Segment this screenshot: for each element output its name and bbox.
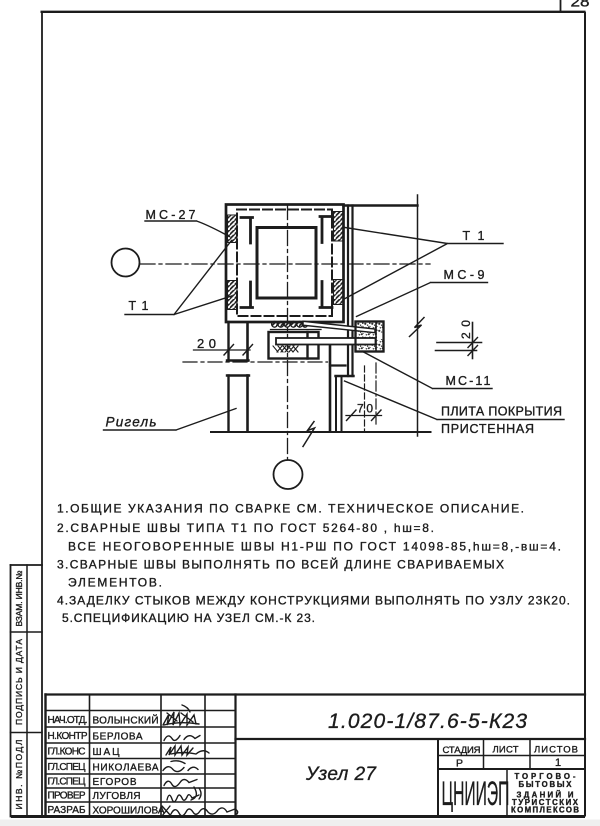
svg-text:ЛУГОВЛЯ: ЛУГОВЛЯ bbox=[93, 791, 141, 802]
svg-text:ЦНИИЭП: ЦНИИЭП bbox=[442, 774, 510, 813]
svg-text:ПЛИТА ПОКРЫТИЯ: ПЛИТА ПОКРЫТИЯ bbox=[441, 405, 562, 419]
svg-text:ВОЛЫНСКИЙ: ВОЛЫНСКИЙ bbox=[93, 714, 159, 727]
svg-text:НАЧ.ОТД.: НАЧ.ОТД. bbox=[48, 715, 88, 726]
svg-text:РАЗРАБ: РАЗРАБ bbox=[48, 805, 86, 816]
svg-text:ПРОВЕР: ПРОВЕР bbox=[48, 791, 86, 802]
svg-text:Узел 27: Узел 27 bbox=[305, 764, 377, 785]
svg-text:Р: Р bbox=[456, 758, 463, 770]
svg-text:ПОДПИСЬ И ДАТА: ПОДПИСЬ И ДАТА bbox=[14, 639, 24, 725]
svg-text:ШАЦ: ШАЦ bbox=[93, 747, 121, 758]
svg-text:ЛИСТ: ЛИСТ bbox=[493, 745, 519, 756]
svg-text:БЕРЛОВА: БЕРЛОВА bbox=[93, 732, 143, 743]
svg-text:ПРИСТЕННАЯ: ПРИСТЕННАЯ bbox=[441, 422, 534, 436]
svg-text:ХОРОШИЛОВА: ХОРОШИЛОВА bbox=[93, 806, 165, 817]
svg-text:МС-9: МС-9 bbox=[444, 268, 485, 282]
svg-text:4.ЗАДЕЛКУ СТЫКОВ МЕЖДУ КОНСТРУ: 4.ЗАДЕЛКУ СТЫКОВ МЕЖДУ КОНСТРУКЦИЯМИ ВЫП… bbox=[57, 594, 570, 608]
svg-text:Ригель: Ригель bbox=[106, 415, 157, 430]
svg-text:ГЛ.СПЕЦ: ГЛ.СПЕЦ bbox=[48, 777, 87, 788]
svg-text:СТАДИЯ: СТАДИЯ bbox=[443, 745, 481, 756]
svg-text:5.СПЕЦИФИКАЦИЮ НА УЗЕЛ СМ.-К 2: 5.СПЕЦИФИКАЦИЮ НА УЗЕЛ СМ.-К 23. bbox=[62, 611, 315, 625]
svg-text:1: 1 bbox=[555, 757, 561, 769]
svg-text:Т 1: Т 1 bbox=[463, 229, 485, 243]
svg-text:1.020-1/87.6-5-К23: 1.020-1/87.6-5-К23 bbox=[328, 710, 527, 733]
svg-text:Н.КОНТР: Н.КОНТР bbox=[48, 731, 88, 742]
svg-text:ГЛ.КОНС: ГЛ.КОНС bbox=[48, 747, 86, 758]
svg-text:ИНВ. №ПОДЛ: ИНВ. №ПОДЛ bbox=[14, 740, 24, 810]
svg-text:ЛИСТОВ: ЛИСТОВ bbox=[534, 745, 578, 756]
svg-text:ВСЕ НЕОГОВОРЕННЫЕ ШВЫ Н1-РШ ПО: ВСЕ НЕОГОВОРЕННЫЕ ШВЫ Н1-РШ ПО ГОСТ 1409… bbox=[68, 540, 561, 554]
svg-text:Т 1: Т 1 bbox=[129, 299, 149, 313]
svg-text:ВЗАМ. ИНВ.№: ВЗАМ. ИНВ.№ bbox=[14, 571, 24, 627]
svg-text:ГЛ.СПЕЦ: ГЛ.СПЕЦ bbox=[48, 762, 87, 773]
svg-text:28: 28 bbox=[571, 0, 590, 11]
svg-text:НИКОЛАЕВА: НИКОЛАЕВА bbox=[93, 763, 159, 774]
svg-text:МС-27: МС-27 bbox=[146, 208, 196, 222]
svg-text:БЫТОВЫХ: БЫТОВЫХ bbox=[519, 780, 573, 789]
svg-text:ЕГОРОВ: ЕГОРОВ bbox=[93, 777, 137, 788]
svg-text:3.СВАРНЫЕ ШВЫ ВЫПОЛНЯТЬ ПО ВСЕ: 3.СВАРНЫЕ ШВЫ ВЫПОЛНЯТЬ ПО ВСЕЙ ДЛИНЕ СВ… bbox=[57, 557, 504, 572]
